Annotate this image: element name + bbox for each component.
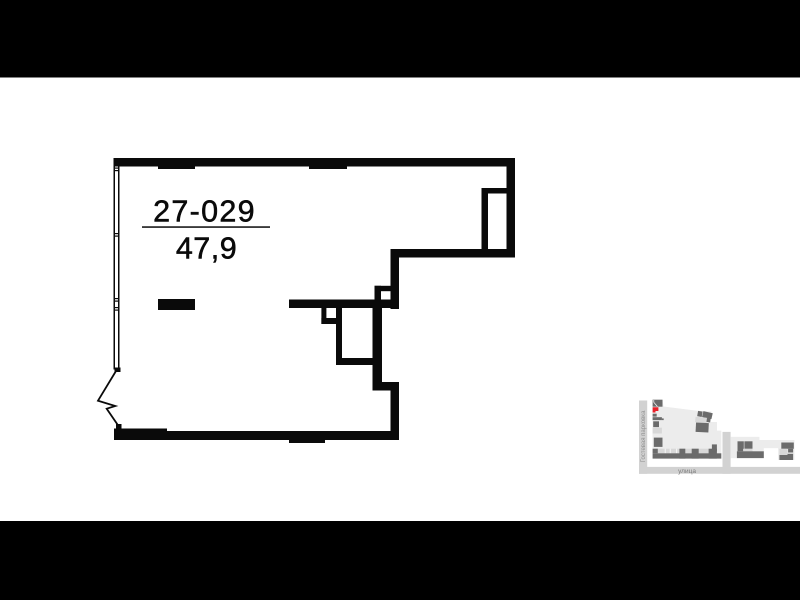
svg-text:47,9: 47,9 — [176, 231, 237, 265]
svg-text:Гостевая парковка: Гостевая парковка — [641, 410, 647, 462]
svg-text:27-029: 27-029 — [153, 194, 256, 228]
svg-text:улица: улица — [678, 468, 696, 475]
